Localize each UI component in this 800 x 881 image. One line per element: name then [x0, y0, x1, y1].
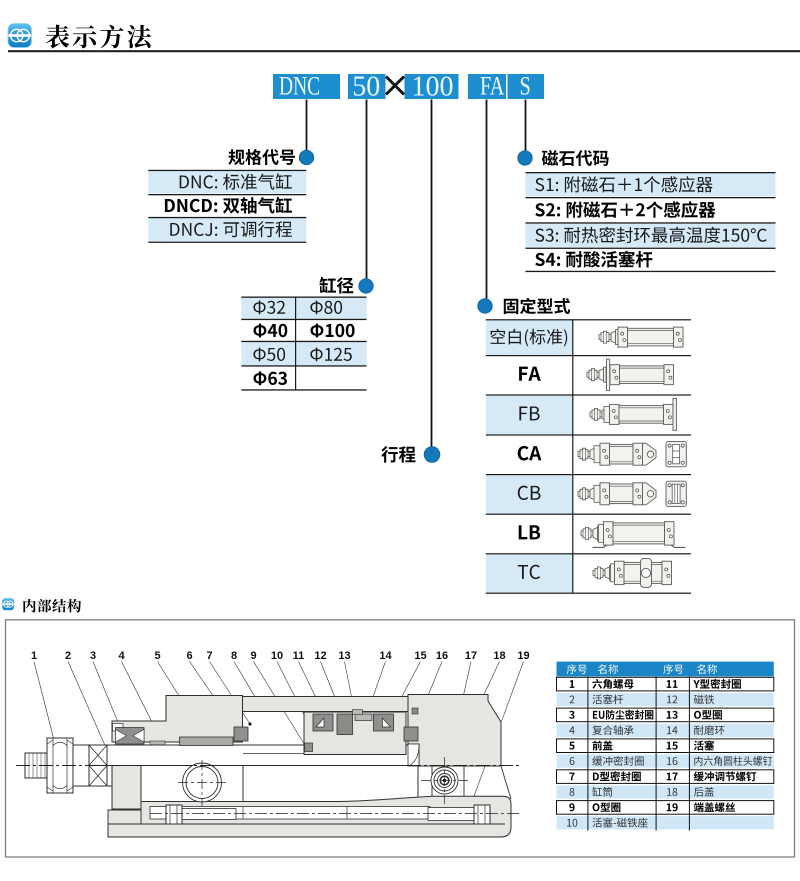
svg-text:100: 100: [412, 72, 454, 103]
svg-text:4: 4: [118, 650, 125, 662]
svg-text:5: 5: [154, 650, 160, 662]
svg-text:3: 3: [90, 650, 96, 662]
svg-text:50: 50: [352, 72, 380, 103]
svg-text:9: 9: [250, 650, 256, 662]
svg-text:12: 12: [314, 650, 326, 662]
svg-text:17: 17: [465, 650, 477, 662]
svg-text:10: 10: [271, 650, 283, 662]
svg-text:19: 19: [517, 650, 529, 662]
svg-text:15: 15: [414, 650, 426, 662]
svg-text:S: S: [520, 72, 531, 101]
svg-text:6: 6: [186, 650, 192, 662]
svg-text:7: 7: [206, 650, 212, 662]
svg-text:2: 2: [65, 650, 71, 662]
svg-text:FA: FA: [480, 72, 505, 101]
svg-text:14: 14: [379, 650, 392, 662]
svg-text:8: 8: [231, 650, 237, 662]
svg-text:11: 11: [293, 650, 305, 662]
svg-text:18: 18: [493, 650, 505, 662]
svg-text:1: 1: [31, 650, 37, 662]
svg-text:DNC: DNC: [279, 72, 320, 100]
svg-text:13: 13: [338, 650, 350, 662]
svg-text:16: 16: [436, 650, 448, 662]
